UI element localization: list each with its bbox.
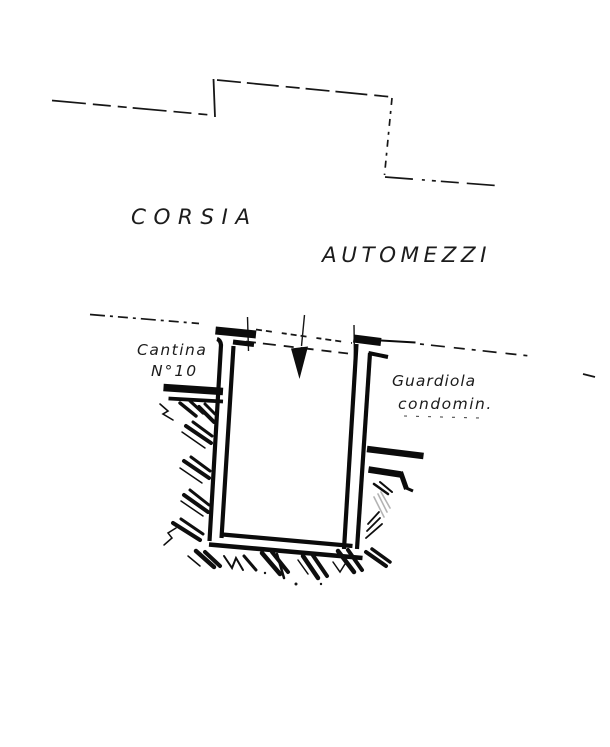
hatching-right	[366, 482, 392, 566]
hatching-left	[160, 401, 215, 545]
entrance-arrow	[291, 347, 308, 380]
cantina-partition-wall	[164, 388, 224, 402]
upper-boundary-line	[52, 79, 502, 186]
automezzi-label: AUTOMEZZI	[320, 243, 491, 268]
guardiola-label-line1: Guardiola	[392, 372, 476, 390]
corsia-label: CORSIA	[131, 205, 258, 230]
guardiola-label-line2: condomin.	[398, 395, 493, 413]
room-walls	[209, 331, 416, 559]
cantina-label-line2: N°10	[151, 362, 198, 380]
scanned-floor-plan-page: CORSIA AUTOMEZZI Cantina N°10 Guardiola …	[0, 0, 610, 747]
floor-plan-drawing: CORSIA AUTOMEZZI Cantina N°10 Guardiola …	[0, 0, 610, 747]
cantina-label-line1: Cantina	[137, 341, 207, 359]
